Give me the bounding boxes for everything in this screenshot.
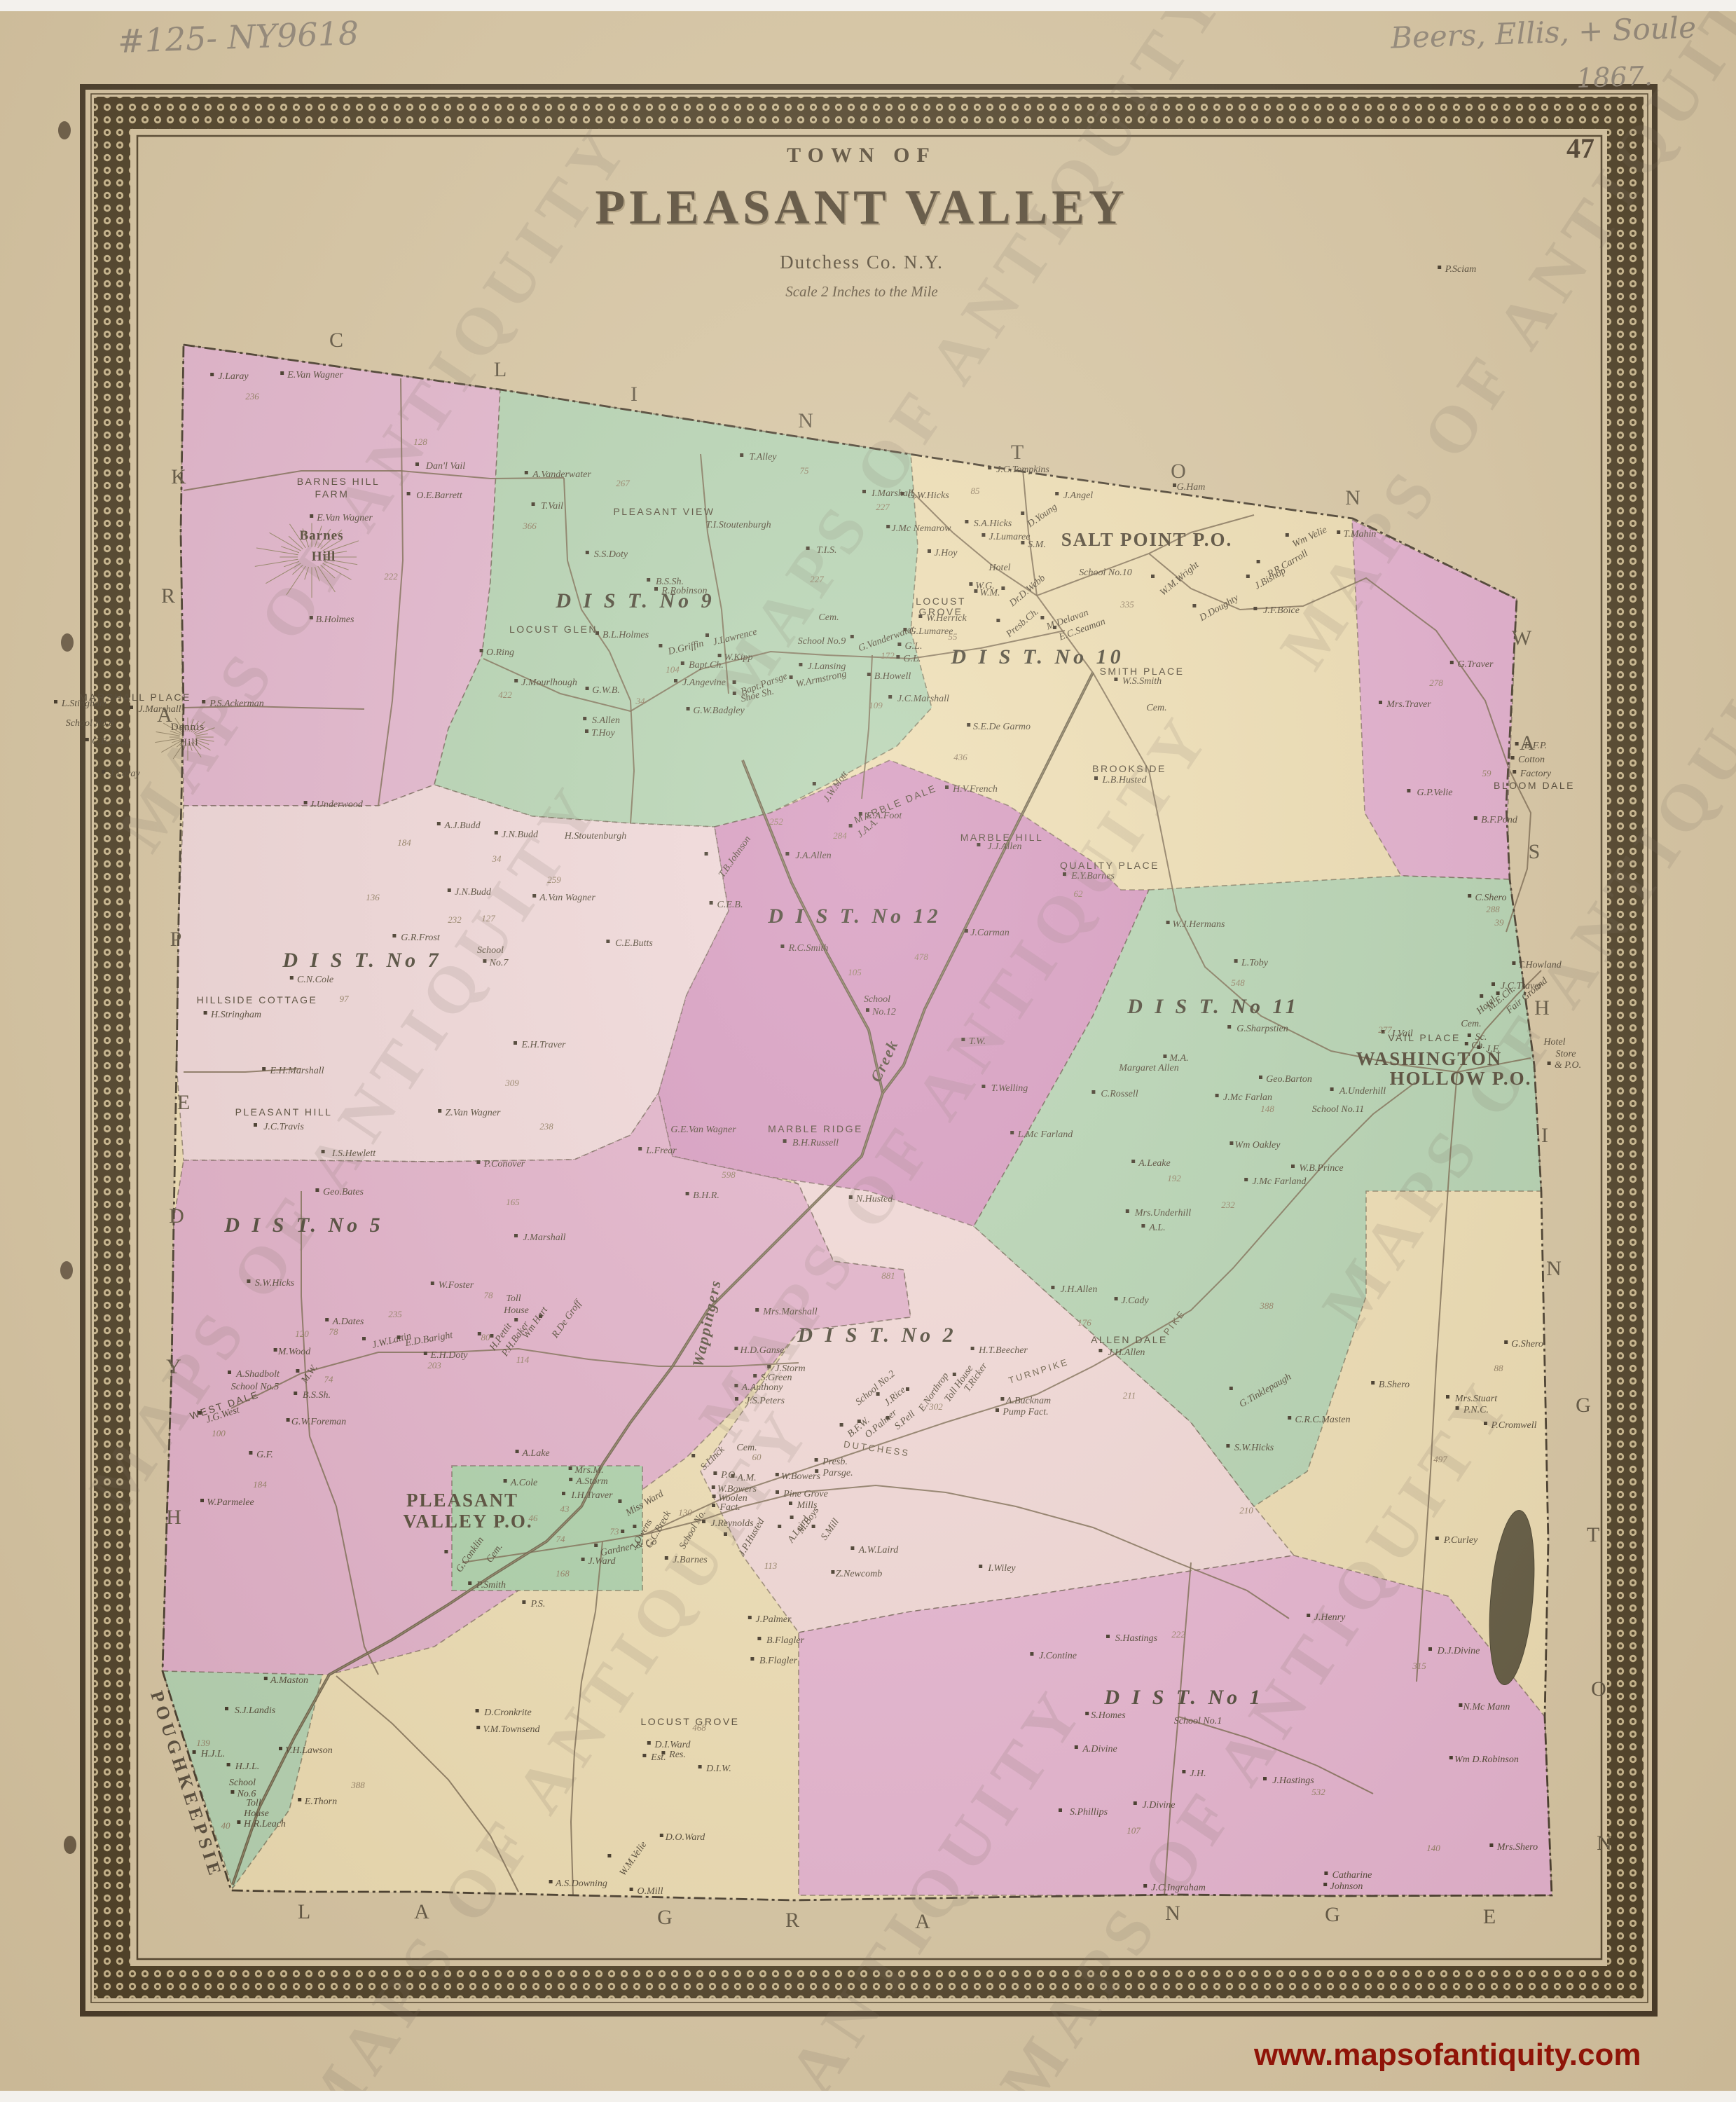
adjacent-town-letter: N	[1546, 1257, 1562, 1280]
map-label: P.Sciam	[1445, 264, 1476, 275]
map-label: 468	[692, 1722, 706, 1733]
map-label: W.Parmelee	[207, 1497, 254, 1508]
map-label: Toll	[506, 1293, 521, 1304]
map-label: 232	[1221, 1200, 1235, 1210]
map-label: 388	[350, 1780, 365, 1790]
map-label: L.Frear	[645, 1146, 677, 1156]
map-label: Pump Fact.	[1002, 1407, 1048, 1417]
map-label: J.Hoy	[934, 548, 958, 558]
map-label: J.J.Allen	[988, 842, 1022, 852]
map-label: 203	[427, 1360, 441, 1371]
map-label: 40	[221, 1820, 231, 1831]
map-label: 74	[324, 1374, 334, 1385]
map-label: J.C.Marshall	[897, 694, 949, 704]
map-label: G.R.Frost	[401, 933, 441, 943]
map-label: G.Shero	[1511, 1339, 1543, 1349]
map-label: Cem.	[1461, 1019, 1481, 1029]
map-label: G.W.Hicks	[907, 490, 949, 501]
map-label: J.A.Allen	[795, 851, 831, 861]
map-label: A.S.Downing	[555, 1878, 607, 1889]
map-label: Cotton	[1518, 755, 1545, 765]
map-label: PLEASANT	[406, 1490, 518, 1511]
map-label: J.Underwood	[310, 799, 364, 810]
map-label: J.Contine	[1039, 1651, 1077, 1661]
map-label: A.Bucknam	[1005, 1396, 1051, 1406]
map-label: 136	[366, 892, 380, 902]
map-label: J.C.Tompkins	[996, 465, 1049, 475]
map-label: J.Marshall	[523, 1232, 565, 1243]
map-label: S.W.Hicks	[1234, 1443, 1274, 1453]
map-label: School No.11	[1312, 1104, 1364, 1115]
map-label: G.Ham	[1177, 482, 1206, 493]
adjacent-town-letter: I	[631, 383, 638, 406]
adjacent-town-letter: G	[1325, 1903, 1340, 1926]
map-label: MARBLE RIDGE	[768, 1123, 863, 1134]
map-label: 302	[928, 1401, 943, 1412]
map-label: 85	[971, 486, 981, 496]
map-label: G.W.B.	[592, 685, 620, 696]
map-label: B.Howell	[874, 671, 911, 682]
map-label: H.T.Beecher	[978, 1345, 1028, 1356]
map-label: 881	[881, 1270, 895, 1281]
map-label: A.Vanderwater	[532, 469, 591, 480]
map-label: S.A.Hicks	[974, 518, 1012, 529]
map-label: 478	[914, 952, 928, 962]
map-label: V.H.Lawson	[285, 1745, 332, 1756]
map-label: Parsge.	[822, 1468, 853, 1478]
adjacent-town-letter: S	[1529, 840, 1541, 863]
map-label: Margaret Allen	[1118, 1063, 1178, 1073]
map-label: 100	[212, 1428, 226, 1438]
map-label: 366	[522, 521, 537, 531]
map-label: School No.1	[1174, 1716, 1222, 1726]
adjacent-town-letter: N	[798, 409, 813, 432]
adjacent-town-letter: P	[170, 928, 182, 951]
map-label: T.Vail	[541, 501, 563, 511]
map-label: 388	[1259, 1300, 1274, 1311]
map-label: S.M.	[1028, 540, 1046, 550]
map-label: 436	[953, 752, 967, 762]
map-label: School No.5	[231, 1382, 279, 1392]
map-label: G.Sharpstien	[1236, 1024, 1288, 1034]
map-label: 210	[1239, 1505, 1253, 1516]
map-label: 59	[1482, 768, 1492, 778]
map-label: G.F.	[256, 1450, 273, 1460]
adjacent-town-letter: K	[171, 465, 186, 488]
map-label: 78	[484, 1290, 494, 1300]
map-label: B.Flagler	[766, 1635, 805, 1646]
map-label: J.Palmer	[756, 1614, 792, 1625]
map-label: A.Divine	[1082, 1744, 1117, 1754]
adjacent-town-letter: N	[1597, 1832, 1612, 1855]
adjacent-town-letter: E	[1483, 1905, 1496, 1928]
adjacent-town-letter: D	[169, 1204, 184, 1228]
map-label: I.H.Traver	[570, 1490, 613, 1501]
seller-url: www.mapsofantiquity.com	[1254, 2038, 1641, 2073]
map-label: A.W.Laird	[858, 1545, 900, 1555]
map-label: M.A.	[1169, 1053, 1188, 1064]
map-label: Toll	[246, 1798, 261, 1808]
map-label: Wm Oakley	[1235, 1140, 1281, 1150]
map-label: E.Van Wagner	[287, 370, 343, 380]
map-label: 46	[529, 1513, 539, 1523]
map-label: VALLEY P.O.	[403, 1511, 532, 1532]
map-label: W.Foster	[439, 1280, 474, 1291]
map-label: J.Mc Nemarow	[891, 523, 951, 534]
map-label: I.Wiley	[987, 1563, 1016, 1574]
map-label: 252	[769, 816, 783, 827]
map-label: G.L.	[905, 641, 923, 652]
map-label: 97	[340, 994, 350, 1004]
map-label: C.E.Butts	[615, 938, 653, 949]
map-label: 39	[1494, 917, 1505, 928]
map-label: A.Dates	[332, 1317, 364, 1327]
map-label: Catharine	[1332, 1870, 1372, 1881]
map-label: J.Ward	[588, 1556, 616, 1567]
map-label: S.Phillips	[1070, 1807, 1108, 1818]
map-label: S.S.Doty	[594, 549, 628, 560]
adjacent-town-letter: R	[785, 1909, 799, 1932]
map-label: 107	[1127, 1825, 1141, 1836]
adjacent-town-letter: R	[161, 584, 175, 607]
adjacent-town-letter: H	[166, 1506, 181, 1529]
map-label: L.Toby	[1241, 958, 1269, 968]
map-label: House	[503, 1305, 529, 1316]
map-label: C.Shero	[1475, 893, 1507, 903]
scan-edge-bottom	[0, 2091, 1736, 2102]
map-label: Z.Newcomb	[836, 1569, 883, 1579]
map-label: 277	[1378, 1024, 1392, 1035]
map-label: 176	[1077, 1317, 1091, 1328]
adjacent-town-letter: O	[1591, 1677, 1606, 1701]
adjacent-town-letter: T	[1587, 1523, 1599, 1546]
map-label: B.Flagler	[759, 1656, 798, 1666]
map-label: G.W.Foreman	[291, 1417, 346, 1427]
map-label: P.Curley	[1443, 1535, 1478, 1546]
map-label: A.Leake	[1138, 1158, 1170, 1169]
map-label: S.J.Landis	[235, 1705, 276, 1716]
map-label: G.E.Van Wagner	[670, 1125, 736, 1135]
map-label: LOCUST GROVE	[641, 1716, 740, 1727]
map-label: 315	[1412, 1661, 1426, 1671]
map-label: 109	[869, 700, 883, 710]
district-label: D I S T. No 10	[950, 645, 1124, 668]
map-label: G.Lumaree	[909, 626, 953, 637]
map-label: School No.10	[1079, 568, 1131, 578]
map-label: House	[243, 1808, 269, 1819]
map-label: 288	[1486, 904, 1500, 914]
map-label: 139	[196, 1738, 210, 1748]
map-label: 422	[498, 689, 512, 700]
map-label: B.Shero	[1379, 1380, 1410, 1390]
map-label: J.Angel	[1063, 490, 1093, 501]
adjacent-town-letter: L	[298, 1900, 310, 1923]
map-label: Johnson	[1330, 1881, 1363, 1892]
map-label: 43	[560, 1504, 570, 1514]
map-label: HILLSIDE COTTAGE	[197, 994, 318, 1005]
map-label: LOCUST GLEN	[509, 624, 598, 635]
map-label: S.Hastings	[1115, 1633, 1158, 1644]
map-label: B.H.R.	[693, 1190, 719, 1201]
map-label: 105	[848, 967, 862, 977]
map-label: E.H.Traver	[521, 1040, 567, 1050]
pencil-date-note: 1867.	[1576, 60, 1653, 94]
map-label: J.Mc Farlan	[1223, 1092, 1272, 1103]
map-label: T.Welling	[991, 1083, 1028, 1094]
map-label: Mrs.Underhill	[1134, 1208, 1191, 1218]
map-label: J.Lumaree	[989, 532, 1031, 542]
scan-edge-top	[0, 0, 1736, 11]
district-label: D I S T. No 11	[1127, 995, 1300, 1018]
map-label: J.Vail	[1391, 1029, 1413, 1039]
adjacent-town-letter: T	[1011, 441, 1024, 464]
map-label: S.E.De Garmo	[973, 722, 1031, 732]
district-label: D I S T. No 12	[767, 905, 941, 928]
adjacent-town-letter: I	[1541, 1124, 1548, 1147]
adjacent-town-letter: C	[329, 329, 343, 352]
map-label: P.Conover	[483, 1159, 525, 1169]
map-label: L.Mc Farland	[1017, 1129, 1074, 1140]
map-label: R.C.Smith	[788, 943, 829, 954]
map-label: 165	[506, 1197, 520, 1207]
map-label: W.M.	[979, 588, 1000, 598]
map-label: 238	[539, 1121, 553, 1132]
map-label: T.I.Stoutenburgh	[705, 520, 771, 530]
map-label: School	[229, 1778, 256, 1788]
map-label: R.Robinson	[661, 586, 708, 596]
map-label: Factory	[1520, 769, 1552, 779]
map-label: Mrs.Traver	[1386, 699, 1431, 710]
map-label: G.P.Velie	[1417, 788, 1452, 798]
map-label: Hotel	[988, 563, 1010, 573]
map-label: 184	[253, 1479, 267, 1490]
map-label: Mrs.M.	[574, 1465, 603, 1476]
map-label: O.Mill	[638, 1886, 663, 1897]
map-label: D.I.Ward	[654, 1740, 691, 1750]
map-label: J.Cady	[1121, 1296, 1149, 1306]
map-label: P.S.	[530, 1599, 546, 1609]
map-label: 235	[388, 1309, 402, 1319]
map-label: T.Hoy	[591, 728, 615, 739]
map-label: 172	[881, 650, 895, 661]
map-label: 532	[1311, 1787, 1325, 1797]
map-label: BLOOM DALE	[1494, 780, 1575, 791]
map-label: 78	[329, 1326, 339, 1337]
map-label: C.R.C.Masten	[1295, 1415, 1351, 1425]
map-label: V.M.Townsend	[483, 1724, 541, 1735]
map-label: 148	[1260, 1104, 1274, 1114]
map-label: T.Alley	[749, 452, 777, 462]
map-label: 192	[1167, 1173, 1181, 1183]
map-label: J.Lansing	[808, 661, 846, 672]
map-label: N.Mc Mann	[1463, 1702, 1510, 1712]
map-label: Wm D.Robinson	[1454, 1754, 1519, 1765]
map-label: H.R.Leach	[243, 1819, 286, 1829]
map-label: Est.	[650, 1752, 666, 1763]
map-label: 335	[1120, 599, 1134, 610]
map-sheet: CLINTONKRAPEDYHWASHINGTONLAGRANGEPOUGHKE…	[0, 0, 1736, 2102]
map-label: SALT POINT P.O.	[1061, 529, 1233, 550]
map-label: PLEASANT VIEW	[613, 506, 715, 517]
map-label: 114	[516, 1354, 530, 1365]
map-label: 34	[635, 696, 646, 706]
map-label: H.J.L.	[200, 1749, 226, 1759]
map-label: 74	[556, 1534, 566, 1544]
map-label: 104	[666, 664, 680, 675]
map-label: L.Stingham	[61, 699, 106, 709]
map-label: B.F.P.	[1524, 741, 1548, 751]
map-label: ALLEN DALE	[1091, 1334, 1168, 1345]
title-kicker: TOWN OF	[546, 144, 1177, 167]
map-label: S.Allen	[592, 715, 620, 726]
map-label: G.W.Badgley	[693, 706, 745, 716]
map-label: 222	[384, 571, 398, 582]
map-label: 75	[800, 465, 810, 476]
map-label: 548	[1231, 977, 1245, 988]
map-label: D.J.Divine	[1437, 1646, 1480, 1656]
map-label: E.Thorn	[304, 1797, 337, 1807]
map-label: School No.8	[66, 718, 113, 729]
map-label: 267	[616, 478, 630, 488]
title-block: TOWN OF PLEASANT VALLEY Dutchess Co. N.Y…	[546, 144, 1177, 301]
map-label: Geo.Barton	[1266, 1074, 1312, 1085]
map-label: D.O.Ward	[665, 1832, 706, 1843]
map-label: W.B.Prince	[1299, 1163, 1343, 1174]
map-label: 211	[1123, 1390, 1136, 1401]
map-label: J.Mourlhough	[521, 678, 577, 688]
map-label: C.E.B.	[717, 900, 743, 910]
map-label: 113	[764, 1560, 778, 1571]
map-label: M.Wood	[277, 1347, 312, 1357]
map-label: J.C.Travis	[263, 1122, 304, 1132]
page-number: 47	[1566, 132, 1594, 165]
map-label: 598	[722, 1169, 736, 1180]
map-label: A.Maston	[270, 1675, 308, 1686]
map-label: A.Storm	[575, 1476, 608, 1487]
map-label: W.J.Hermans	[1173, 919, 1225, 930]
map-label: LOCUST	[916, 596, 966, 607]
map-label: P.Smith	[476, 1580, 506, 1591]
map-label: 309	[504, 1078, 519, 1088]
adjacent-town-letter: W	[1512, 626, 1532, 650]
map-label: School	[864, 994, 890, 1005]
map-label: 278	[1429, 678, 1443, 688]
map-label: Z.Van Wagner	[446, 1108, 501, 1118]
map-label: Mrs.Shero	[1496, 1842, 1538, 1853]
adjacent-town-letter: E	[177, 1091, 190, 1114]
map-label: SMITH PLACE	[1100, 666, 1185, 677]
map-label: 284	[833, 830, 847, 841]
map-label: Res.	[668, 1750, 686, 1760]
map-label: 88	[1494, 1363, 1504, 1373]
title-scale: Scale 2 Inches to the Mile	[546, 283, 1177, 301]
map-label: A.J.Budd	[443, 820, 481, 831]
adjacent-town-letter: O	[1171, 460, 1186, 483]
map-label: PLEASANT HILL	[235, 1106, 333, 1118]
map-label: 55	[949, 631, 958, 642]
map-label: B.H.Russell	[792, 1138, 839, 1148]
map-label: D.I.W.	[705, 1764, 731, 1774]
map-label: E.H.Marshall	[270, 1066, 324, 1076]
map-label: 222	[1171, 1629, 1185, 1640]
map-label: 73	[610, 1526, 620, 1537]
map-label: H.J.L.	[235, 1761, 260, 1772]
map-label: B.S.Sh.	[303, 1390, 331, 1401]
binder-holes	[58, 121, 76, 1854]
map-label: H.V.French	[952, 784, 998, 795]
page-title: PLEASANT VALLEY	[546, 180, 1177, 236]
map-label: Presb.	[822, 1457, 848, 1467]
map-label: A.L.	[1148, 1223, 1165, 1233]
map-label: No.12	[872, 1007, 896, 1017]
map-label: W.Herrick	[926, 613, 967, 624]
map-label: D.Cronkrite	[483, 1708, 532, 1718]
map-label: 184	[397, 837, 411, 848]
map-label: B.F.Pond	[1481, 815, 1518, 825]
map-label: A.Lake	[521, 1448, 549, 1459]
map-label: J.Laray	[218, 371, 249, 382]
map-label: H.Stringham	[210, 1010, 261, 1020]
map-label: J.H.Allen	[1108, 1347, 1145, 1358]
adjacent-town-letter: G	[1576, 1394, 1591, 1417]
adjacent-town-letter: G	[657, 1906, 673, 1929]
map-label: A.Shadbolt	[235, 1369, 280, 1380]
title-county: Dutchess Co. N.Y.	[546, 252, 1177, 273]
map-label: C.B.Days	[92, 736, 130, 747]
map-label: W.S.Smith	[1122, 676, 1162, 687]
map-label: C.Rossell	[1101, 1089, 1138, 1099]
map-label: G.L.	[904, 654, 921, 664]
map-label: C.N.Cole	[297, 975, 333, 985]
map-label: 236	[245, 391, 259, 401]
map-label: B.L.Holmes	[602, 630, 649, 640]
map-label: A.Cole	[510, 1478, 538, 1488]
map-label: 140	[1426, 1843, 1440, 1853]
map-label: J.Hastings	[1272, 1775, 1314, 1786]
map-label: E.H.Doty	[430, 1350, 469, 1361]
map-label: J.H.Allen	[1061, 1284, 1098, 1295]
map-label: O.Ring	[486, 647, 514, 658]
map-label: O.E.Barrett	[416, 490, 463, 501]
map-label: A.Underhill	[1339, 1086, 1386, 1097]
map-label: G.Traver	[1458, 659, 1494, 670]
map-label: 80	[481, 1332, 491, 1342]
map-label: 120	[295, 1328, 309, 1339]
map-label: J.Mc Farland	[1253, 1176, 1307, 1187]
map-label: 168	[556, 1568, 570, 1579]
